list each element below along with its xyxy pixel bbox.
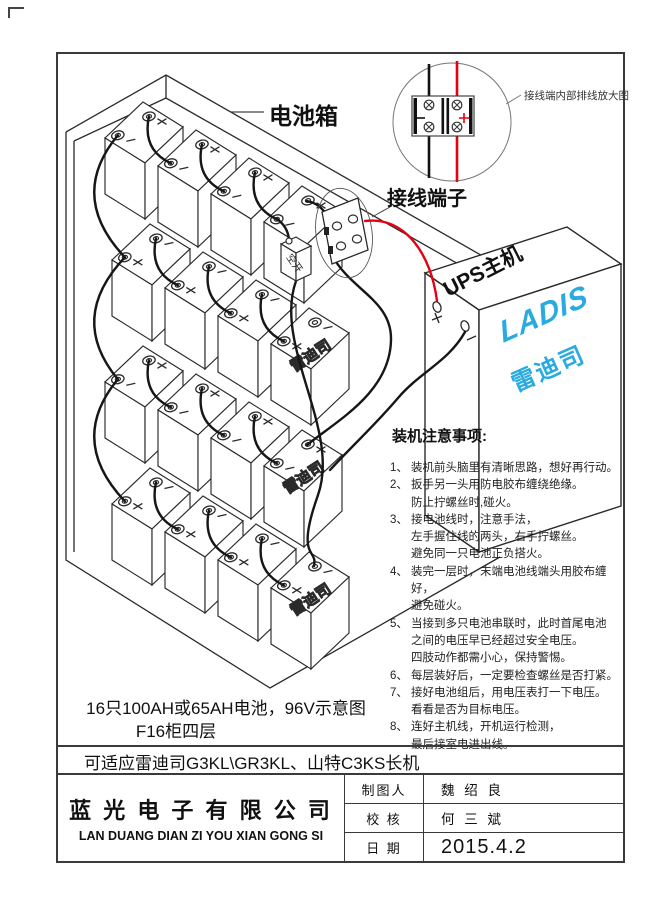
detail-label-leader <box>506 95 521 104</box>
caption-battery-spec: 16只100AH或65AH电池，96V示意图 <box>86 694 366 719</box>
detail-bar <box>414 98 418 134</box>
row-value-drafter: 魏 绍 良 <box>424 775 623 803</box>
table-row: 日 期 2015.4.2 <box>345 833 623 861</box>
company-name-pinyin: LAN DUANG DIAN ZI YOU XIAN GONG SI <box>79 829 323 843</box>
note-number: 7、 <box>390 685 411 720</box>
terminal-block-tab <box>324 227 329 235</box>
caption-cabinet: F16柜四层 <box>106 717 246 742</box>
row-label-date: 日 期 <box>345 833 424 861</box>
note-number: 1、 <box>390 460 411 477</box>
note-item: 7、接好电池组后，用电压表打一下电压。看看是否为目标电压。 <box>390 685 622 720</box>
installation-notes: 装机注意事项: 1、装机前头脑里有清晰思路，想好再行动。2、扳手另一头用防电胶布… <box>390 425 622 754</box>
notes-title: 装机注意事项: <box>392 425 622 446</box>
company-cell: 蓝 光 电 子 有 限 公 司 LAN DUANG DIAN ZI YOU XI… <box>58 775 345 861</box>
terminal-block-label: 接线端子 <box>387 186 467 210</box>
note-item: 2、扳手另一头用防电胶布缠绕绝缘。防止拧螺丝时,碰火。 <box>390 477 622 512</box>
corner-mark <box>9 8 24 18</box>
terminal-block-hole <box>352 235 361 243</box>
table-row: 制图人 魏 绍 良 <box>345 775 623 804</box>
note-item: 3、接电池线时，注意手法，左手握住线的两头，右手拧螺丝。避免同一只电池正负搭火。 <box>390 512 622 564</box>
terminal-block-tab <box>328 246 333 254</box>
note-item: 6、每层装好后，一定要检查螺丝是否打紧。 <box>390 668 622 685</box>
engineering-drawing-page: 雷迪司雷迪司雷迪司空开接线端子电池箱UPS主机LADIS雷迪司接线端内部排线放大… <box>0 0 667 922</box>
title-block-grid: 制图人 魏 绍 良 校 核 何 三 斌 日 期 2015.4.2 <box>345 775 623 861</box>
note-item: 4、装完一层时，末端电池线端头用胶布缠好，避免碰火。 <box>390 564 622 616</box>
detail-bar <box>469 98 473 134</box>
breaker-screw <box>286 238 292 244</box>
note-text: 每层装好后，一定要检查螺丝是否打紧。 <box>411 668 622 685</box>
note-text: 当接到多只电池串联时，此时首尾电池之间的电压早已经超过安全电压。四肢动作都需小心… <box>411 616 622 668</box>
detail-bar <box>447 98 450 134</box>
note-text: 装完一层时，末端电池线端头用胶布缠好，避免碰火。 <box>411 564 622 616</box>
note-text: 接电池线时，注意手法，左手握住线的两头，右手拧螺丝。避免同一只电池正负搭火。 <box>411 512 622 564</box>
title-block: 蓝 光 电 子 有 限 公 司 LAN DUANG DIAN ZI YOU XI… <box>56 773 625 863</box>
note-item: 1、装机前头脑里有清晰思路，想好再行动。 <box>390 460 622 477</box>
row-label-checker: 校 核 <box>345 804 424 832</box>
company-name-cn: 蓝 光 电 子 有 限 公 司 <box>69 793 333 825</box>
notes-list: 1、装机前头脑里有清晰思路，想好再行动。2、扳手另一头用防电胶布缠绕绝缘。防止拧… <box>390 460 622 754</box>
compatibility-note: 可适应雷迪司G3KL\GR3KL、山特C3KS长机 <box>84 749 419 774</box>
note-item: 5、当接到多只电池串联时，此时首尾电池之间的电压早已经超过安全电压。四肢动作都需… <box>390 616 622 668</box>
terminal-block-hole <box>332 222 341 230</box>
row-label-drafter: 制图人 <box>345 775 424 803</box>
note-text: 扳手另一头用防电胶布缠绕绝缘。防止拧螺丝时,碰火。 <box>411 477 622 512</box>
note-number: 3、 <box>390 512 411 564</box>
detail-bar <box>442 98 445 134</box>
row-value-checker: 何 三 斌 <box>424 804 623 832</box>
note-number: 6、 <box>390 668 411 685</box>
note-number: 5、 <box>390 616 411 668</box>
table-row: 校 核 何 三 斌 <box>345 804 623 833</box>
note-number: 4、 <box>390 564 411 616</box>
battery-box-label: 电池箱 <box>269 103 338 129</box>
row-value-date: 2015.4.2 <box>424 833 623 861</box>
note-number: 2、 <box>390 477 411 512</box>
note-text: 接好电池组后，用电压表打一下电压。看看是否为目标电压。 <box>411 685 622 720</box>
note-text: 连好主机线，开机运行检测，最后接室电进出线。 <box>411 719 622 754</box>
note-text: 装机前头脑里有清晰思路，想好再行动。 <box>411 460 622 477</box>
detail-view-label: 接线端内部排线放大图 <box>524 89 629 102</box>
battery-terminal-post <box>312 320 318 325</box>
section-divider <box>56 745 623 747</box>
terminal-block-hole <box>336 242 345 250</box>
note-item: 8、连好主机线，开机运行检测，最后接室电进出线。 <box>390 719 622 754</box>
terminal-block-hole <box>348 215 357 223</box>
